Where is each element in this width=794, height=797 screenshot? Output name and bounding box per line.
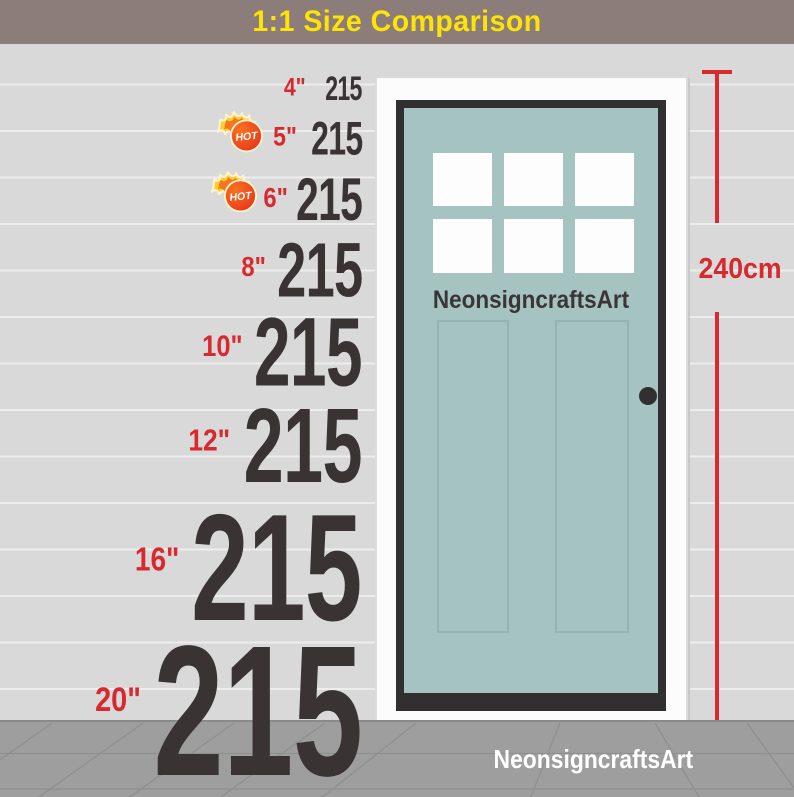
- ground-pavement: NeonsigncraftsArt: [0, 720, 794, 797]
- size-label-10in: 10": [203, 332, 243, 362]
- title-bar: 1:1 Size Comparison: [0, 0, 794, 44]
- size-comparison-graphic: NeonsigncraftsArt NeonsigncraftsArt 240c…: [0, 0, 794, 797]
- door-panel-left: [437, 320, 509, 633]
- door-window-grid: [433, 153, 634, 273]
- door-panel-right: [555, 320, 629, 633]
- number-sample-10in: 215: [254, 304, 362, 401]
- door-window-pane: [433, 153, 492, 206]
- size-label-5in: 5": [273, 124, 297, 151]
- number-sample-4in: 215: [325, 72, 362, 106]
- measure-height-label: 240cm: [699, 253, 780, 286]
- size-label-4in: 4": [284, 76, 306, 101]
- page-title: 1:1 Size Comparison: [20, 0, 774, 44]
- door-surface: NeonsigncraftsArt: [404, 108, 658, 693]
- door: NeonsigncraftsArt: [396, 100, 666, 711]
- size-label-8in: 8": [241, 253, 266, 281]
- size-label-20in: 20": [95, 683, 141, 717]
- door-window-pane: [504, 153, 563, 206]
- door-window-pane: [575, 219, 634, 273]
- door-window-pane: [433, 219, 492, 273]
- size-label-6in: 6": [263, 184, 288, 212]
- door-window-pane: [504, 219, 563, 273]
- number-sample-6in: 215: [296, 170, 362, 230]
- measure-line-upper: [715, 73, 719, 223]
- door-knob: [639, 387, 657, 405]
- footer-watermark: NeonsigncraftsArt: [494, 744, 693, 775]
- hot-badge-label: HOT: [229, 190, 254, 204]
- hot-badge-icon: HOT: [208, 167, 261, 217]
- size-label-12in: 12": [188, 425, 230, 456]
- measure-line-lower: [715, 312, 719, 720]
- size-label-16in: 16": [134, 543, 179, 576]
- hot-badge-icon: HOT: [214, 107, 267, 157]
- number-sample-5in: 215: [311, 115, 362, 162]
- door-window-pane: [575, 153, 634, 206]
- door-brand-text: NeonsigncraftsArt: [417, 286, 646, 315]
- number-sample-20in: 215: [153, 619, 362, 797]
- hot-badge-label: HOT: [235, 130, 260, 144]
